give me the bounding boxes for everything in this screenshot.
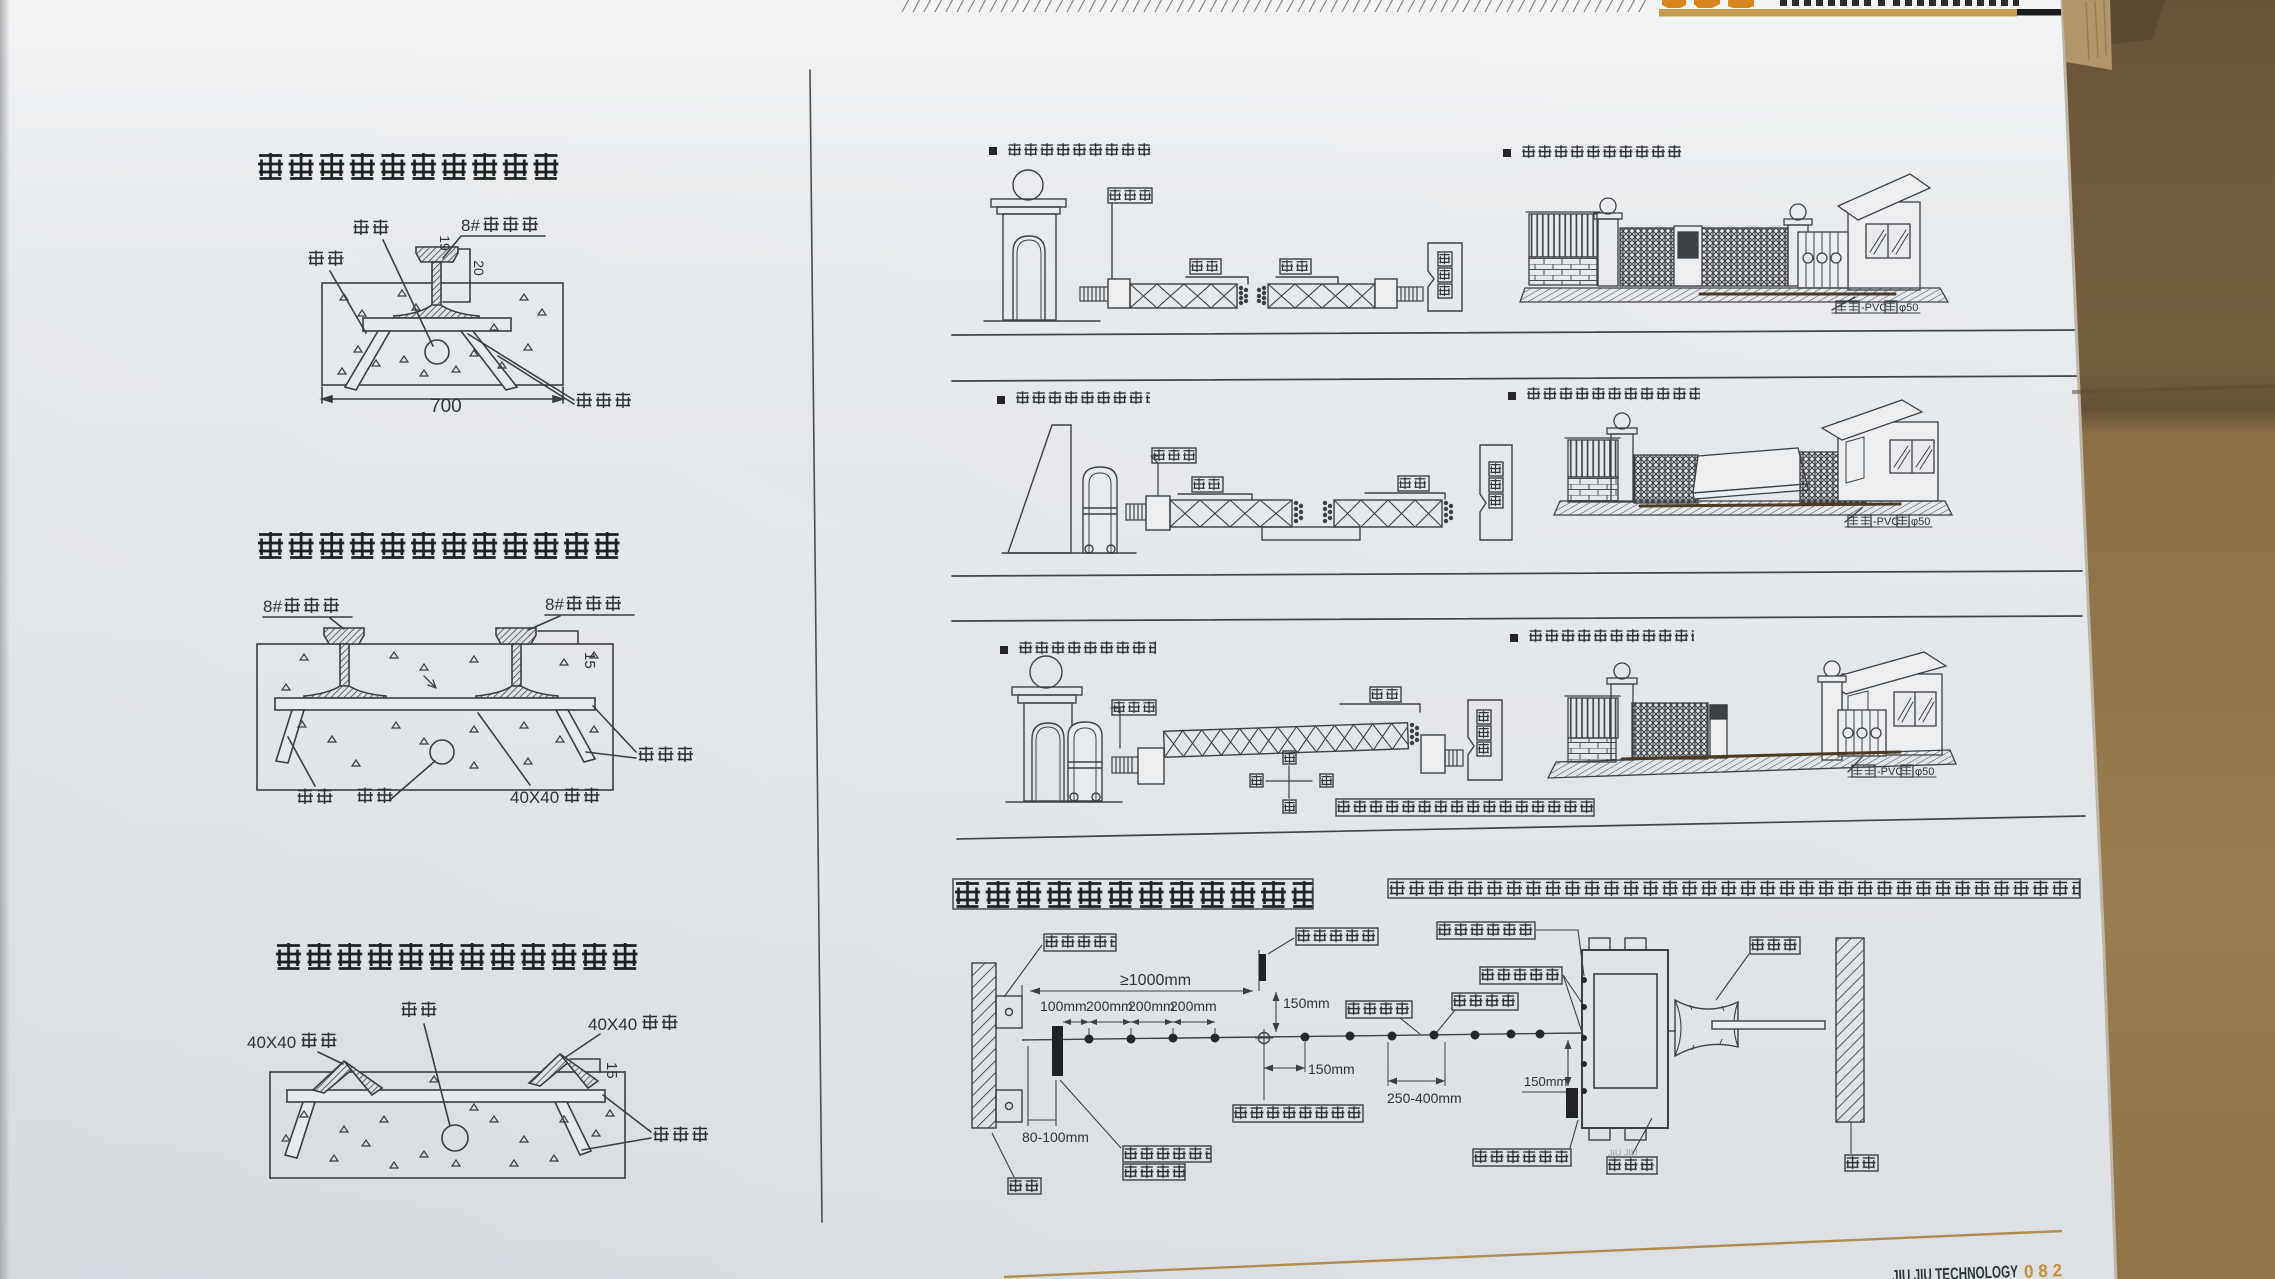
svg-text:-PVC: -PVC <box>1877 766 1903 778</box>
svg-text:200mm: 200mm <box>1086 998 1133 1014</box>
svg-text:8#: 8# <box>545 595 564 614</box>
svg-text:80-100mm: 80-100mm <box>1022 1129 1089 1145</box>
svg-text:≥1000mm: ≥1000mm <box>1120 972 1191 989</box>
svg-text:200mm: 200mm <box>1128 998 1175 1014</box>
svg-text:0 8 2: 0 8 2 <box>2024 1260 2063 1279</box>
svg-text:150mm: 150mm <box>1308 1061 1355 1077</box>
svg-text:700: 700 <box>430 396 462 417</box>
svg-text:250-400mm: 250-400mm <box>1387 1090 1462 1106</box>
svg-text:40X40: 40X40 <box>247 1033 296 1052</box>
svg-text:150mm: 150mm <box>1283 995 1330 1011</box>
svg-text:20: 20 <box>471 260 487 276</box>
svg-text:100mm: 100mm <box>1040 998 1087 1014</box>
svg-text:φ50: φ50 <box>1915 766 1934 778</box>
svg-text:8#: 8# <box>263 597 282 616</box>
svg-text:-PVC: -PVC <box>1861 302 1887 314</box>
svg-text:40X40: 40X40 <box>588 1015 637 1034</box>
svg-text:150mm: 150mm <box>1524 1074 1567 1089</box>
svg-text:40X40: 40X40 <box>510 788 559 807</box>
svg-text:-PVC: -PVC <box>1873 516 1899 528</box>
svg-text:15: 15 <box>603 1062 620 1079</box>
svg-text:200mm: 200mm <box>1170 998 1217 1014</box>
svg-text:φ50: φ50 <box>1899 302 1918 314</box>
svg-text:JIU JIU: JIU JIU <box>1608 1147 1638 1158</box>
svg-text:15: 15 <box>581 652 598 669</box>
svg-text:φ50: φ50 <box>1911 516 1930 528</box>
svg-text:8#: 8# <box>461 216 480 235</box>
